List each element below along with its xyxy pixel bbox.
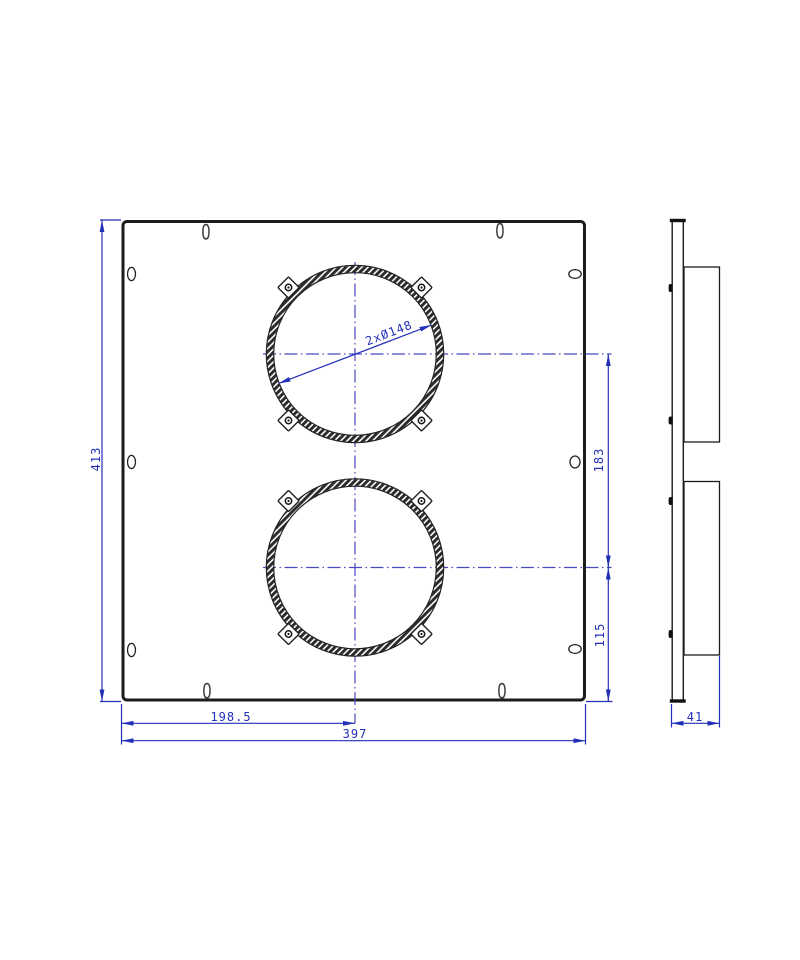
slot-left-middle xyxy=(128,455,136,468)
drawing-canvas: 0 0 0 0 413 198.5 397 183 115 41 2xØ148 xyxy=(0,0,800,960)
dim-198-5-label: 198.5 xyxy=(210,711,251,723)
dim-413-label: 413 xyxy=(90,447,102,472)
slot-right-middle xyxy=(570,456,580,468)
zero-marker-bottom-right: 0 xyxy=(497,681,507,702)
slot-right-top xyxy=(569,270,581,279)
side-plate xyxy=(672,221,683,701)
dim-397-label: 397 xyxy=(343,728,368,740)
front-view xyxy=(123,222,612,724)
side-plate-bottom-cap xyxy=(670,699,686,702)
lower-duct-block xyxy=(684,482,720,656)
zero-marker-bottom-left: 0 xyxy=(202,681,212,702)
upper-duct-block xyxy=(684,267,720,442)
slot-right-bottom xyxy=(569,645,581,654)
side-view xyxy=(669,219,720,703)
dim-41-label: 41 xyxy=(687,711,703,723)
side-plate-top-cap xyxy=(670,219,686,222)
slot-left-bottom xyxy=(128,643,136,656)
zero-marker-top-right: 0 xyxy=(495,221,505,242)
dim-183-label: 183 xyxy=(593,447,605,472)
zero-marker-top-left: 0 xyxy=(201,222,211,243)
slot-left-top xyxy=(128,267,136,280)
panel-outline xyxy=(123,222,585,701)
dim-115-label: 115 xyxy=(594,623,606,648)
drawing-lines xyxy=(0,0,800,960)
